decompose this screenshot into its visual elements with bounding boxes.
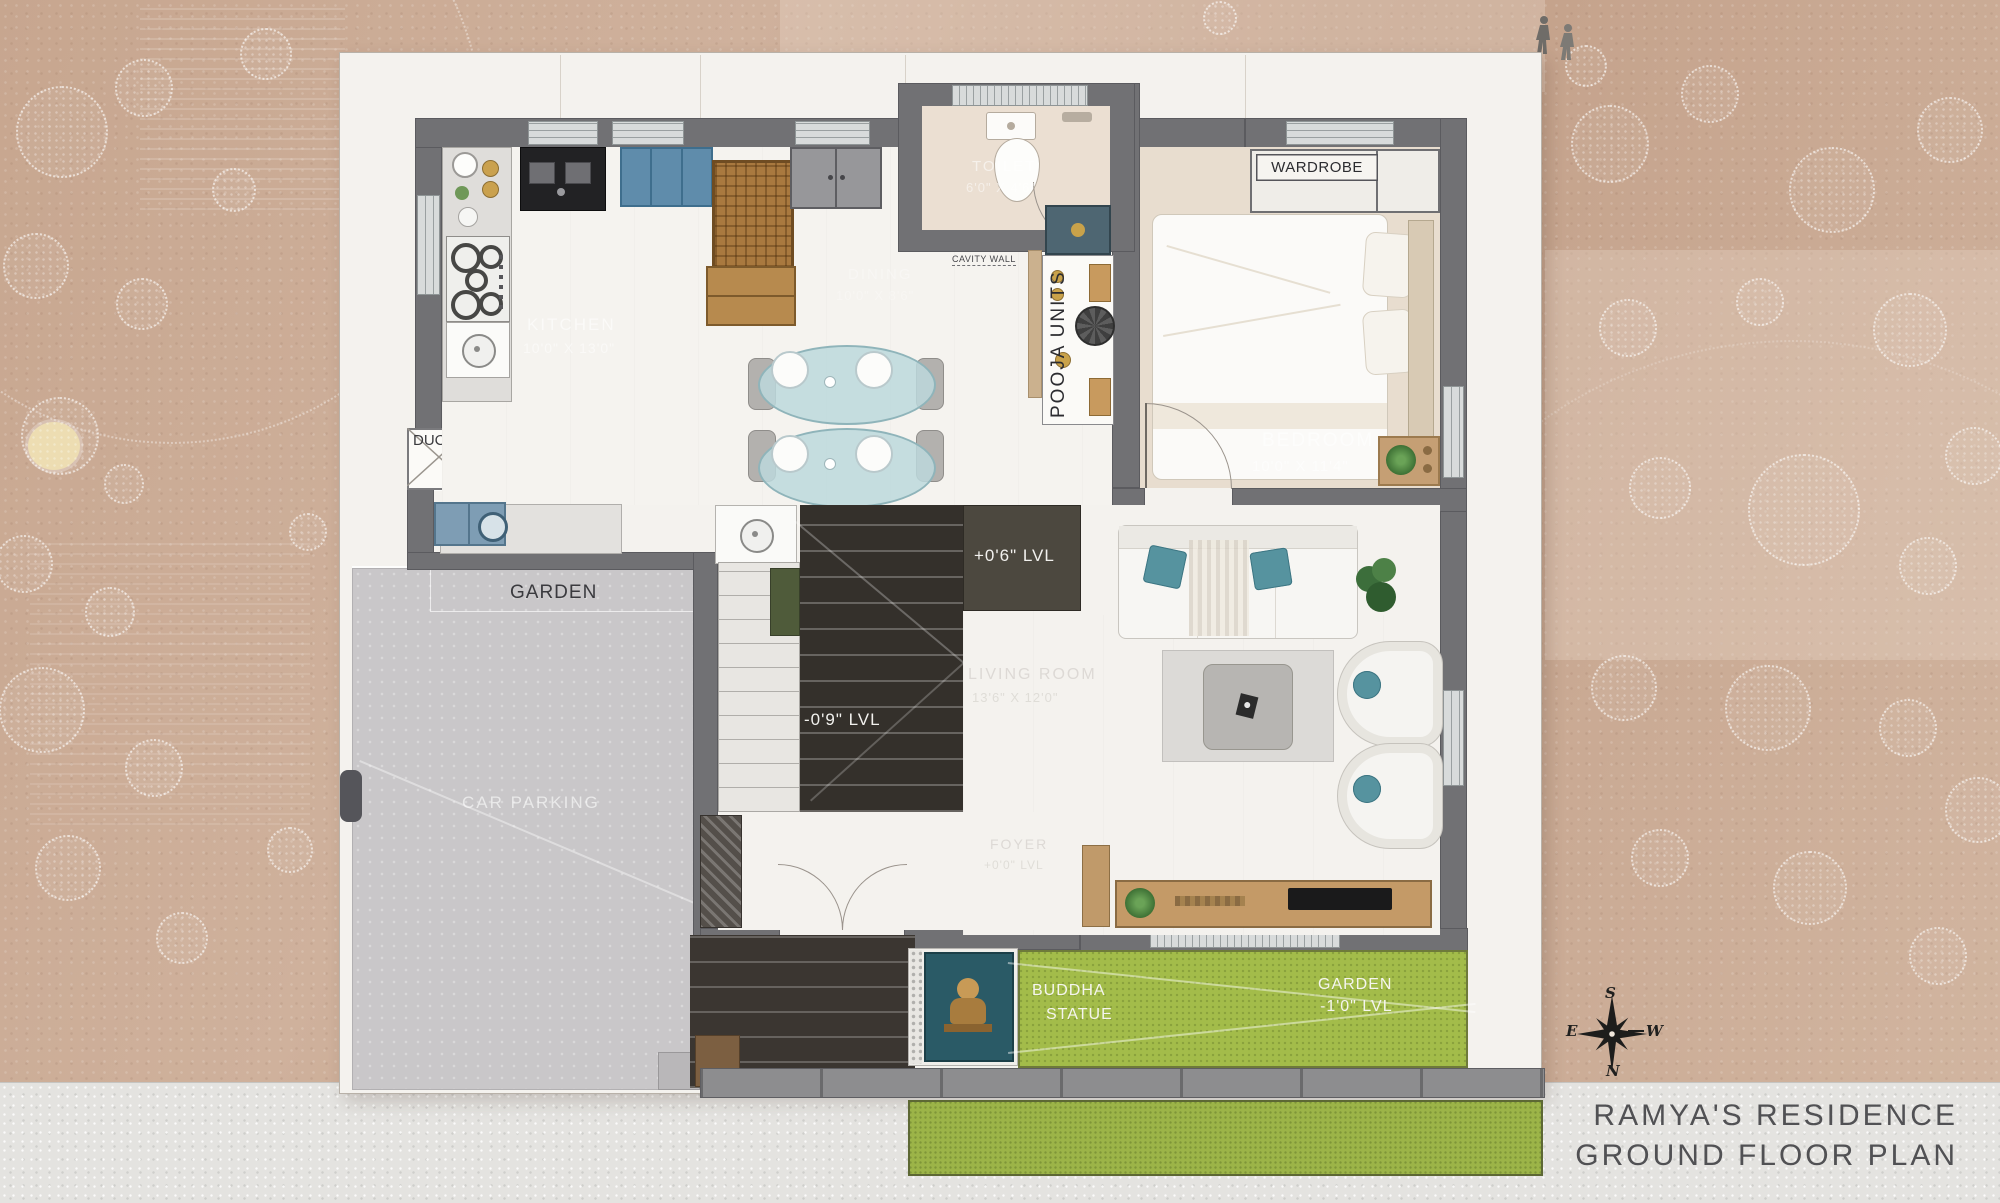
buddha-label-line2: STATUE — [1046, 1006, 1113, 1024]
kettle-icon — [452, 152, 478, 178]
buddha-label-line1: BUDDHA — [1032, 982, 1106, 1000]
plate-icon — [855, 435, 893, 473]
kitchen-label: KITCHEN — [527, 315, 616, 335]
living-label: LIVING ROOM — [968, 666, 1097, 684]
tree-symbol — [1629, 457, 1691, 519]
tree-symbol — [1571, 105, 1649, 183]
buddha-statue-icon — [950, 998, 986, 1024]
table-accessory — [824, 458, 836, 470]
bedside-table — [1378, 436, 1440, 486]
toilet-dim-label: 6'0" X 4'6" — [966, 180, 1036, 195]
foyer-label: FOYER — [990, 836, 1048, 852]
toilet-tank — [986, 112, 1036, 140]
corner-plant — [1352, 558, 1402, 616]
armchair-pillow — [1353, 671, 1381, 699]
table-object — [1236, 693, 1259, 719]
stair-level-label: -0'9" LVL — [804, 710, 881, 730]
tree-symbol — [16, 86, 108, 178]
tree-symbol — [21, 397, 99, 475]
dining-dim-label: 10'0" X 8'6" — [836, 288, 914, 303]
compass-north-letter: N — [1606, 1062, 1620, 1080]
wood-crate — [712, 160, 794, 270]
wardrobe-label: WARDROBE — [1271, 159, 1363, 176]
tree-symbol — [116, 278, 168, 330]
outer-garden-strip — [908, 1100, 1543, 1176]
kitchen-window-west — [417, 195, 440, 295]
buddha-statue-base — [944, 1024, 992, 1032]
tv-console — [1115, 880, 1432, 928]
dining-label: DINING — [848, 266, 913, 283]
kitchen-sink — [446, 322, 510, 378]
table-accessory — [824, 376, 836, 388]
tree-symbol — [1591, 655, 1657, 721]
tree-symbol — [35, 835, 101, 901]
buddha-niche-frame — [908, 948, 1018, 1066]
cavity-wall-label: CAVITY WALL — [952, 254, 1016, 266]
tree-symbol — [1748, 454, 1860, 566]
tree-symbol — [1736, 278, 1784, 326]
tree-symbol — [1945, 427, 2000, 485]
gate-pillar — [340, 770, 362, 822]
plant-pot-icon — [455, 186, 469, 200]
compass-east-letter: E — [1566, 1022, 1577, 1040]
counter-sink-unit — [520, 147, 606, 211]
armchair — [1338, 642, 1442, 746]
tree-symbol — [1681, 65, 1739, 123]
wood-drawer — [706, 266, 796, 297]
wall-south-kitchen — [407, 552, 702, 570]
foyer-console — [1082, 845, 1110, 927]
wood-drawer — [706, 295, 796, 326]
wash-counter — [715, 505, 797, 564]
plate-icon — [855, 351, 893, 389]
tree-symbol — [240, 28, 292, 80]
tree-symbol — [1873, 293, 1947, 367]
sofa-throw — [1189, 540, 1249, 636]
tree-symbol — [1631, 829, 1689, 887]
tree-symbol — [1599, 299, 1657, 357]
toilet-label: TOILET — [972, 158, 1036, 175]
console-plant-icon — [1125, 888, 1155, 918]
tree-symbol — [104, 464, 144, 504]
wall-north-passage — [1133, 118, 1245, 148]
staircase — [800, 505, 965, 812]
drawing-title: GROUND FLOOR PLAN — [1560, 1136, 1958, 1176]
jar-icon — [482, 181, 499, 198]
pooja-shelf-box — [1089, 264, 1111, 302]
title-block: RAMYA'S RESIDENCE GROUND FLOOR PLAN — [1560, 1096, 1958, 1176]
jar-icon — [482, 160, 499, 177]
tree-symbol — [85, 587, 135, 637]
tree-symbol — [1879, 699, 1937, 757]
tv-icon — [1288, 888, 1392, 910]
tree-symbol — [1203, 1, 1237, 35]
plate-icon — [771, 435, 809, 473]
sofa-pillow — [1142, 544, 1187, 589]
living-window-east — [1443, 690, 1464, 786]
console-books — [1175, 896, 1245, 906]
rangoli-icon — [1075, 306, 1115, 346]
bedroom-dim-label: 10'0" X 11'4" — [1252, 458, 1349, 475]
car-parking-area — [352, 568, 700, 1090]
pooja-units-label: POOJA UNITS — [1048, 268, 1070, 418]
tree-symbol — [115, 59, 173, 117]
living-dim-label: 13'6" X 12'0" — [972, 690, 1058, 705]
planter-box — [770, 568, 800, 636]
kitchen-window — [795, 121, 870, 145]
sofa-pillow — [1249, 547, 1292, 590]
stove-icon — [446, 236, 510, 322]
compass-rose: S N E W — [1560, 980, 1670, 1086]
buddha-panel — [924, 952, 1014, 1062]
grid-line — [700, 55, 701, 118]
tree-symbol — [3, 233, 69, 299]
tree-symbol — [1899, 537, 1957, 595]
plant-icon — [1386, 445, 1416, 475]
gray-cabinet — [790, 147, 882, 209]
tree-symbol — [212, 168, 256, 212]
bedroom-door-leaf — [1145, 403, 1147, 488]
grid-line — [905, 55, 906, 85]
armchair — [1338, 744, 1442, 848]
tree-symbol — [125, 739, 183, 797]
plate-icon — [771, 351, 809, 389]
kitchen-window — [528, 121, 598, 145]
compass-south-letter: S — [1605, 984, 1616, 1002]
garden-left-label: GARDEN — [510, 582, 597, 604]
tree-symbol — [1909, 927, 1967, 985]
wall-east — [1440, 118, 1467, 956]
bedroom-window-north — [1286, 121, 1394, 145]
compass-west-letter: W — [1646, 1022, 1663, 1040]
pooja-upper-cabinet — [1045, 205, 1111, 255]
garden-right-label-line2: -1'0" LVL — [1320, 998, 1393, 1016]
foyer-level-label: +0'0" LVL — [984, 858, 1044, 872]
buddha-statue-icon — [957, 978, 979, 1000]
bedroom-label: BEDROOM — [1262, 430, 1374, 452]
pebble-strip — [910, 950, 922, 1064]
coffee-table — [1203, 664, 1293, 750]
tree-symbol — [267, 827, 313, 873]
tree-symbol — [289, 513, 327, 551]
cavity-wall — [1028, 250, 1042, 398]
bedroom-window-east — [1443, 386, 1464, 478]
plate-icon — [458, 207, 478, 227]
floor-plan-sheet: GARDEN CAR PARKING DUCT — [0, 0, 2000, 1203]
grid-line — [1245, 55, 1246, 118]
compound-wall — [700, 1068, 1545, 1098]
kitchen-dim-label: 10'0" X 13'0" — [523, 340, 615, 356]
tree-symbol — [0, 667, 85, 753]
wardrobe: WARDROBE — [1250, 149, 1440, 213]
grid-line — [560, 55, 561, 118]
car-parking-label: CAR PARKING — [462, 793, 600, 813]
washing-machine — [434, 502, 506, 546]
tree-symbol — [1917, 97, 1983, 163]
landing-level-label: +0'6" LVL — [974, 546, 1055, 566]
tree-symbol — [1789, 147, 1875, 233]
shoe-cabinet — [700, 815, 742, 928]
garden-right-label-line1: GARDEN — [1318, 976, 1392, 994]
toilet-window — [952, 85, 1088, 106]
project-title: RAMYA'S RESIDENCE — [1560, 1096, 1958, 1136]
faucet-icon — [1062, 112, 1092, 122]
pooja-shelf-box — [1089, 378, 1111, 416]
tree-symbol — [1773, 851, 1847, 925]
blue-cabinet — [620, 147, 713, 207]
tree-symbol — [156, 912, 208, 964]
compass-west-arm — [1628, 1030, 1644, 1032]
armchair-pillow — [1353, 775, 1381, 803]
kitchen-window — [612, 121, 684, 145]
tree-symbol — [1725, 665, 1811, 751]
